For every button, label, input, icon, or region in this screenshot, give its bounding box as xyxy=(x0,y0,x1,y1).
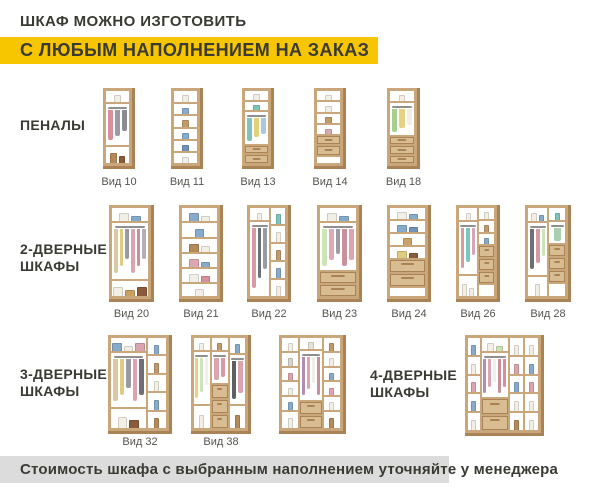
shelf-item xyxy=(113,287,123,296)
cabinet-view-label: Вид 20 xyxy=(92,308,172,320)
shelf-item xyxy=(189,213,199,221)
shelf-item xyxy=(201,276,211,281)
cabinet-shelf xyxy=(174,116,197,127)
cabinet-shelf xyxy=(479,221,494,231)
cabinet-shelf xyxy=(174,153,197,163)
cabinet-shelf xyxy=(194,406,210,428)
cabinet-shelf xyxy=(510,376,523,393)
drawer-handle-icon xyxy=(324,139,333,141)
drawer xyxy=(390,260,425,272)
drawer xyxy=(300,416,322,428)
cabinet-shelf xyxy=(182,239,217,252)
clothes-group xyxy=(528,228,547,275)
cabinet-section xyxy=(482,338,509,430)
cabinet-shelf xyxy=(245,102,268,111)
shelf-item xyxy=(539,215,544,220)
shelf-item xyxy=(409,253,419,258)
cabinet-illustration xyxy=(317,205,362,302)
cabinet-section xyxy=(250,208,269,296)
shelf-item xyxy=(288,418,293,428)
cabinet-shelf xyxy=(324,338,340,351)
cabinet-shelf xyxy=(148,393,166,409)
clothes-group xyxy=(482,358,509,397)
drawer-handle-icon xyxy=(217,403,223,405)
cabinet-shelf xyxy=(324,353,340,366)
clothing-item xyxy=(120,229,124,266)
shelf-item xyxy=(462,284,467,296)
drawer-handle-icon xyxy=(331,275,345,277)
cabinet-section xyxy=(317,91,340,163)
shelf-item xyxy=(119,156,125,163)
shelf-item xyxy=(182,157,188,163)
clothing-item xyxy=(329,229,334,259)
cabinet-shelf xyxy=(271,226,285,242)
cabinet-shelf xyxy=(212,338,228,350)
drawer xyxy=(320,285,356,296)
clothing-item xyxy=(322,229,327,265)
cabinet-shelf xyxy=(230,406,246,428)
shelf-item xyxy=(154,381,159,391)
cabinet-section xyxy=(300,338,322,428)
cabinet-shelf xyxy=(390,208,425,219)
clothing-item xyxy=(200,358,203,392)
cabinet-shelf xyxy=(468,413,480,430)
shelf-item xyxy=(189,259,199,267)
shelf-item xyxy=(253,94,259,99)
drawer xyxy=(245,146,268,154)
cabinet-section xyxy=(525,338,538,430)
cabinet-shelf xyxy=(320,208,356,221)
cabinet-shelf xyxy=(528,277,547,296)
shelf-item xyxy=(329,402,334,410)
cabinet-shelf xyxy=(324,382,340,395)
clothing-item xyxy=(125,229,129,259)
cabinet-illustration xyxy=(242,88,274,169)
shelf-item xyxy=(514,401,519,411)
shelf-item xyxy=(487,343,494,351)
clothing-item xyxy=(536,229,540,263)
cabinet-drawers xyxy=(482,399,509,430)
drawer-handle-icon xyxy=(554,274,560,276)
cabinet-view-label: Вид 22 xyxy=(229,308,309,320)
cabinet-shelf xyxy=(549,284,565,296)
clothing-item xyxy=(399,109,404,128)
shelf-item xyxy=(154,363,159,373)
cabinet-section xyxy=(282,338,298,428)
cabinet-shelf xyxy=(148,338,166,354)
cabinet-hang xyxy=(549,222,565,243)
clothing-item xyxy=(530,229,534,270)
clothing-item xyxy=(488,359,491,387)
shelf-item xyxy=(529,364,534,374)
shelf-item xyxy=(110,153,116,163)
cabinet-shelf xyxy=(182,208,217,221)
shelf-item xyxy=(471,401,476,411)
shelf-item xyxy=(201,246,211,252)
cabinet-view-label: Вид 18 xyxy=(364,176,444,188)
shelf-item xyxy=(288,343,293,351)
shelf-item xyxy=(327,213,337,221)
shelf-item xyxy=(514,420,519,430)
cabinet-illustration xyxy=(314,88,346,169)
cabinet-view-label: Вид 13 xyxy=(218,176,298,188)
cabinet-section xyxy=(468,338,480,430)
drawer xyxy=(317,136,340,144)
cabinet-section xyxy=(194,338,210,428)
clothing-item xyxy=(122,110,127,131)
drawer-handle-icon xyxy=(484,275,489,277)
shelf-item xyxy=(466,213,471,220)
cabinet-section xyxy=(390,91,414,163)
shelf-item xyxy=(199,415,204,428)
clothing-item xyxy=(461,228,464,269)
shelf-item xyxy=(529,345,534,355)
shelf-item xyxy=(397,225,407,232)
clothing-item xyxy=(263,228,267,269)
cabinet-section xyxy=(112,208,148,296)
shelf-item xyxy=(235,344,240,353)
drawer-handle-icon xyxy=(490,403,500,405)
cabinet-shelf xyxy=(479,285,494,296)
cabinet-shelf xyxy=(111,338,146,351)
shelf-item xyxy=(154,418,159,428)
shelf-item xyxy=(129,420,139,428)
shelf-item xyxy=(201,262,211,268)
cabinet-hang xyxy=(194,352,210,404)
drawer-handle-icon xyxy=(490,419,500,421)
clothes-group xyxy=(106,109,129,145)
cabinet-illustration xyxy=(456,205,500,302)
shelf-item xyxy=(182,95,188,101)
shelf-item xyxy=(182,120,188,126)
clothes-group xyxy=(250,227,269,296)
cabinet-view-label: Вид 26 xyxy=(438,308,518,320)
shelf-item xyxy=(329,418,334,428)
cabinet-view-label: Вид 24 xyxy=(369,308,449,320)
cabinet-shelf xyxy=(182,284,217,296)
cabinet-shelf xyxy=(282,397,298,410)
clothes-group xyxy=(194,357,210,404)
cabinet-shelf xyxy=(106,91,129,102)
cabinet-hang xyxy=(320,223,356,270)
drawer-handle-icon xyxy=(397,158,406,160)
cabinet-shelf xyxy=(390,91,414,101)
shelf-item xyxy=(514,382,519,392)
cabinet-shelf xyxy=(510,413,523,430)
shelf-item xyxy=(308,342,314,349)
shelf-item xyxy=(329,373,334,381)
shelf-item xyxy=(471,420,476,430)
drawer xyxy=(390,146,414,153)
shelf-item xyxy=(253,105,259,110)
drawer-handle-icon xyxy=(217,418,223,420)
clothing-item xyxy=(254,118,259,137)
cabinet-shelf xyxy=(282,353,298,366)
clothes-group xyxy=(245,117,268,144)
cabinet-shelf xyxy=(324,397,340,410)
clothing-item xyxy=(238,361,243,392)
cabinet-section xyxy=(148,338,166,428)
cabinet-shelf xyxy=(282,412,298,428)
cabinet-illustration xyxy=(465,335,544,436)
shelf-item xyxy=(119,213,129,221)
cabinet-shelf xyxy=(510,338,523,355)
shelf-item xyxy=(217,343,222,350)
clothing-item xyxy=(554,228,561,241)
shelf-item xyxy=(112,343,122,351)
cabinet-shelf xyxy=(282,382,298,395)
shelf-item xyxy=(403,238,413,245)
shelf-item xyxy=(325,106,331,112)
cabinet-shelf xyxy=(282,368,298,381)
cabinet-hang xyxy=(528,223,547,275)
cabinet-shelf xyxy=(525,413,538,430)
cabinet-shelf xyxy=(390,288,425,296)
shelf-item xyxy=(397,212,407,219)
shelf-item xyxy=(529,420,534,430)
shelf-item xyxy=(288,373,293,381)
shelf-item xyxy=(484,238,489,244)
shelf-item xyxy=(124,346,134,351)
cabinet-drawers xyxy=(390,260,425,287)
shelf-item xyxy=(118,417,128,428)
cabinet-hang xyxy=(112,223,148,278)
clothing-item xyxy=(336,229,341,254)
clothing-item xyxy=(466,228,469,262)
clothing-item xyxy=(214,358,219,380)
cabinet-shelf xyxy=(390,234,425,245)
cabinet-illustration xyxy=(525,205,571,302)
drawer-handle-icon xyxy=(401,277,415,279)
shelf-item xyxy=(182,133,188,139)
clothing-item xyxy=(131,229,135,273)
cabinet-shelf xyxy=(245,91,268,100)
drawer xyxy=(482,399,509,413)
cabinet-section xyxy=(174,91,197,163)
cabinet-shelf xyxy=(230,338,246,353)
cabinet-shelf xyxy=(390,247,425,258)
drawer xyxy=(390,137,414,144)
clothes-group xyxy=(212,357,228,383)
clothing-item xyxy=(113,359,118,401)
cabinet-illustration xyxy=(179,205,223,302)
cabinet-shelf xyxy=(317,114,340,123)
shelf-item xyxy=(484,212,489,219)
cabinet-shelf xyxy=(317,91,340,100)
clothing-item xyxy=(114,229,118,273)
clothing-item xyxy=(258,228,262,278)
cabinet-hang xyxy=(212,352,228,383)
cabinet-illustration xyxy=(108,335,172,434)
cabinet-shelf xyxy=(317,157,340,163)
drawer xyxy=(320,272,356,283)
cabinet-view-label: Вид 38 xyxy=(181,436,261,448)
drawer xyxy=(482,416,509,430)
clothing-item xyxy=(195,358,198,398)
shelf-item xyxy=(325,95,331,101)
cabinet-shelf xyxy=(148,375,166,391)
clothing-item xyxy=(503,359,506,387)
clothes-group xyxy=(111,358,146,407)
cabinet-shelf xyxy=(174,91,197,102)
shelf-item xyxy=(288,388,293,396)
group-label: 4-ДВЕРНЫЕ ШКАФЫ xyxy=(370,367,457,401)
shelf-item xyxy=(399,95,406,101)
shelf-item xyxy=(125,290,135,296)
shelf-item xyxy=(182,145,188,151)
cabinet-illustration xyxy=(387,205,431,302)
cabinet-drawers xyxy=(300,402,322,428)
cabinet-shelf xyxy=(182,254,217,267)
drawer-handle-icon xyxy=(554,261,560,263)
clothing-item xyxy=(261,118,266,133)
drawer xyxy=(317,146,340,154)
shelf-item xyxy=(471,364,476,374)
shelf-item xyxy=(135,343,145,351)
clothing-item xyxy=(407,109,412,125)
clothing-item xyxy=(120,359,125,395)
cabinet-shelf xyxy=(271,262,285,278)
cabinet-hang xyxy=(245,112,268,144)
clothes-group xyxy=(112,228,148,278)
clothing-item xyxy=(302,357,305,395)
shelf-item xyxy=(329,388,334,396)
cabinet-section xyxy=(212,338,228,428)
cabinet-section xyxy=(324,338,340,428)
drawer-handle-icon xyxy=(554,248,560,250)
clothing-item xyxy=(317,357,320,395)
cabinet-drawers xyxy=(245,146,268,163)
shelf-item xyxy=(189,274,199,281)
cabinet-shelf xyxy=(324,368,340,381)
clothes-group xyxy=(300,356,322,400)
cabinet-shelf xyxy=(111,409,146,428)
cabinet-hang xyxy=(111,353,146,407)
clothing-item xyxy=(139,359,144,395)
shelf-item xyxy=(276,268,281,278)
shelf-item xyxy=(276,250,281,260)
drawer-handle-icon xyxy=(307,405,315,407)
cabinet-shelf xyxy=(112,281,148,296)
clothing-item xyxy=(126,359,131,388)
cabinet-shelf xyxy=(510,357,523,374)
clothing-item xyxy=(472,228,475,256)
page-title-line1: ШКАФ МОЖНО ИЗГОТОВИТЬ xyxy=(20,13,246,30)
cabinet-section xyxy=(271,208,285,296)
cabinet-shelf xyxy=(528,208,547,221)
cabinet-section xyxy=(510,338,523,430)
cabinet-section xyxy=(320,208,356,296)
cabinet-shelf xyxy=(317,125,340,134)
shelf-item xyxy=(182,108,188,114)
shelf-item xyxy=(339,216,349,222)
cabinet-hang xyxy=(106,104,129,145)
shelf-item xyxy=(325,129,331,135)
shelf-item xyxy=(329,358,334,366)
shelf-item xyxy=(288,402,293,410)
cabinet-hang xyxy=(230,355,246,403)
cabinet-section xyxy=(111,338,146,428)
cabinet-shelf xyxy=(525,338,538,355)
cabinet-shelf xyxy=(174,104,197,115)
cabinet-section xyxy=(459,208,477,296)
drawer xyxy=(390,274,425,286)
cabinet-hang xyxy=(390,103,414,135)
drawer-handle-icon xyxy=(252,148,261,150)
cabinet-hang xyxy=(250,222,269,296)
cabinet-section xyxy=(479,208,494,296)
shelf-item xyxy=(514,345,519,355)
shelf-item xyxy=(555,213,560,220)
cabinet-section xyxy=(182,208,217,296)
shelf-item xyxy=(154,400,159,410)
clothing-item xyxy=(342,229,347,265)
shelf-item xyxy=(276,214,281,224)
clothes-group xyxy=(549,227,565,243)
shelf-item xyxy=(288,358,293,366)
cabinet-drawers xyxy=(479,246,494,283)
cabinet-view-label: Вид 32 xyxy=(100,436,180,448)
cabinet-view-label: Вид 11 xyxy=(147,176,227,188)
drawer xyxy=(300,402,322,414)
shelf-item xyxy=(276,232,281,242)
cabinet-shelf xyxy=(271,208,285,224)
drawer-handle-icon xyxy=(324,149,333,151)
clothing-item xyxy=(137,229,141,266)
drawer-handle-icon xyxy=(484,249,489,251)
cabinet-hang xyxy=(300,351,322,400)
cabinet-shelf xyxy=(148,412,166,428)
shelf-item xyxy=(329,343,334,351)
cabinet-shelf xyxy=(468,338,480,355)
cabinet-section xyxy=(230,338,246,428)
clothes-group xyxy=(320,228,356,270)
cabinet-section xyxy=(106,91,129,163)
cabinet-illustration xyxy=(109,205,154,302)
drawer xyxy=(212,385,228,398)
cabinet-shelf xyxy=(525,376,538,393)
drawer xyxy=(479,272,494,283)
shelf-item xyxy=(496,346,503,352)
shelf-item xyxy=(529,401,534,411)
clothing-item xyxy=(221,358,226,376)
cabinet-view-label: Вид 23 xyxy=(300,308,380,320)
shelf-item xyxy=(529,382,534,392)
cabinet-shelf xyxy=(194,338,210,350)
drawer-handle-icon xyxy=(217,388,223,390)
shelf-item xyxy=(535,284,540,296)
shelf-item xyxy=(131,216,141,222)
cabinet-illustration xyxy=(103,88,135,169)
cabinet-shelf xyxy=(510,394,523,411)
clothing-item xyxy=(108,110,113,141)
clothing-item xyxy=(133,359,138,401)
shelf-item xyxy=(195,289,205,296)
group-label: 2-ДВЕРНЫЕ ШКАФЫ xyxy=(20,241,107,275)
shelf-item xyxy=(201,216,211,222)
shelf-item xyxy=(325,117,331,123)
page-title-line2: С ЛЮБЫМ НАПОЛНЕНИЕМ НА ЗАКАЗ xyxy=(20,37,369,64)
shelf-item xyxy=(397,251,407,258)
cabinet-illustration xyxy=(247,205,291,302)
drawer xyxy=(212,400,228,413)
cabinet-drawers xyxy=(390,137,414,163)
drawer xyxy=(479,259,494,270)
clothing-item xyxy=(312,357,315,383)
cabinet-view-label: Вид 28 xyxy=(508,308,588,320)
shelf-item xyxy=(514,364,519,374)
drawer xyxy=(549,258,565,269)
